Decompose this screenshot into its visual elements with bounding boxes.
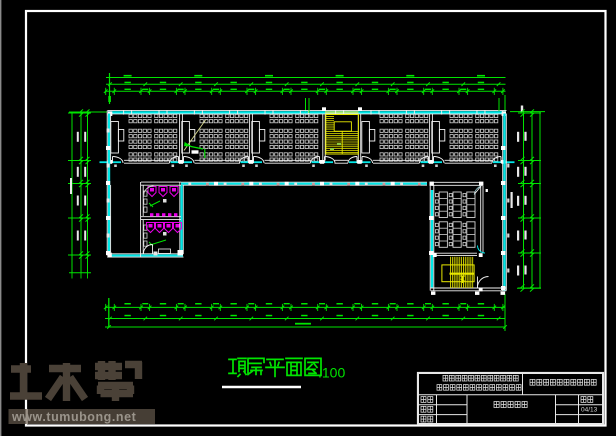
svg-text:.100: .100 <box>318 365 345 381</box>
svg-text:04/13: 04/13 <box>581 407 598 414</box>
svg-text:www.tumubong.net: www.tumubong.net <box>11 410 137 424</box>
